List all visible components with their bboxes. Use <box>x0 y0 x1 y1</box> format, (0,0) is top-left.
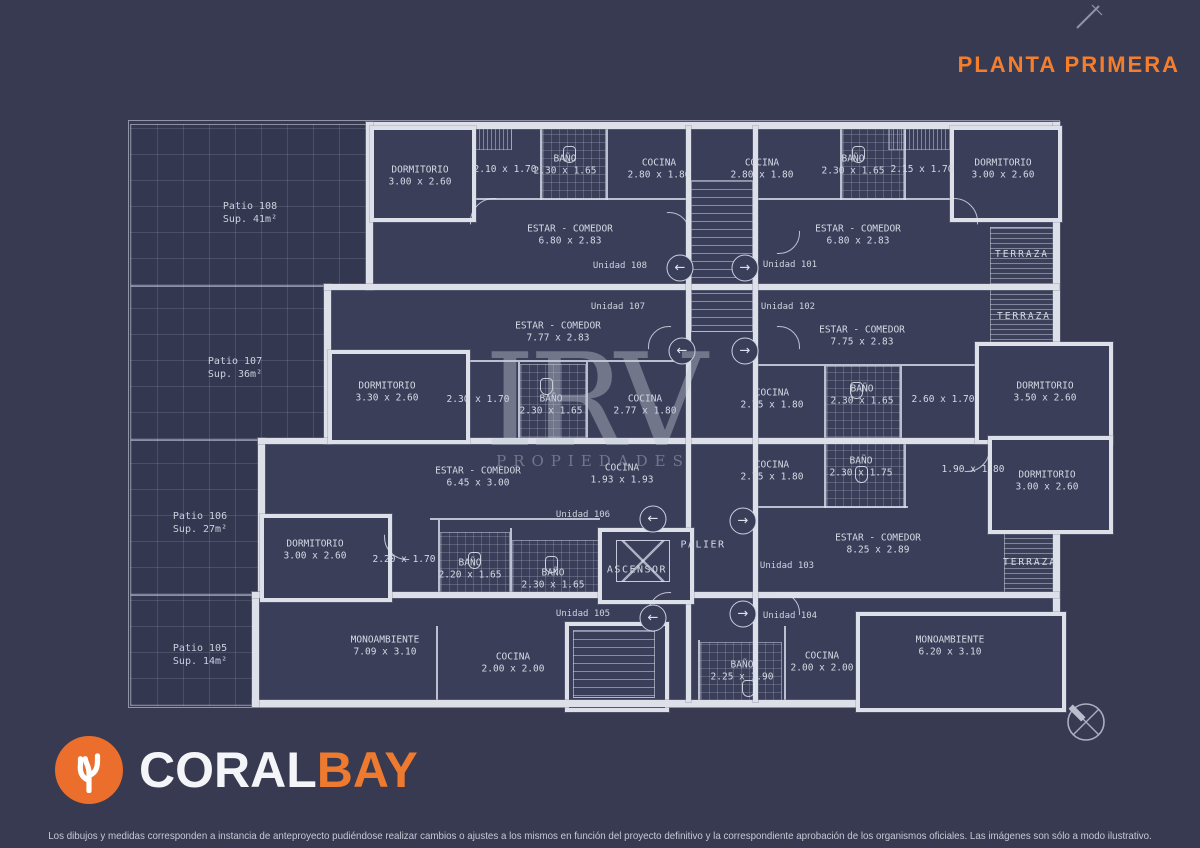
label-room: COCINA 2.80 x 1.80 <box>731 158 794 183</box>
label-room: ESTAR - COMEDOR 7.77 x 2.83 <box>515 321 601 346</box>
label-room: DORMITORIO 3.30 x 2.60 <box>356 381 419 406</box>
label-room: MONOAMBIENTE 6.20 x 3.10 <box>916 635 985 660</box>
label-dim: 2.20 x 1.70 <box>373 554 436 566</box>
plan-labels: Patio 108 Sup. 41m²Patio 107 Sup. 36m²Pa… <box>0 0 1200 848</box>
label-room: BAÑO 2.25 x 1.90 <box>711 660 774 685</box>
label-room: COCINA 2.00 x 2.00 <box>791 651 854 676</box>
label-core: PALIER <box>680 539 725 552</box>
coral-icon <box>55 736 123 804</box>
label-dim: 2.15 x 1.70 <box>891 164 954 176</box>
label-unit: Unidad 106 <box>556 510 610 522</box>
label-dim: 1.90 x 1.80 <box>942 464 1005 476</box>
label-patio: Patio 107 Sup. 36m² <box>208 355 262 381</box>
label-room: ESTAR - COMEDOR 6.45 x 3.00 <box>435 466 521 491</box>
label-unit: Unidad 105 <box>556 609 610 621</box>
label-room: COCINA 1.93 x 1.93 <box>591 463 654 488</box>
label-dim: 2.60 x 1.70 <box>912 394 975 406</box>
label-room: BAÑO 2.30 x 1.65 <box>522 568 585 593</box>
logo: CORALBAY <box>55 736 418 804</box>
label-room: COCINA 2.75 x 1.80 <box>741 460 804 485</box>
label-unit: Unidad 107 <box>591 302 645 314</box>
label-room: ESTAR - COMEDOR 7.75 x 2.83 <box>819 325 905 350</box>
page-title: PLANTA PRIMERA <box>958 52 1180 78</box>
label-room: ESTAR - COMEDOR 6.80 x 2.83 <box>527 224 613 249</box>
label-room: BAÑO 2.20 x 1.65 <box>439 558 502 583</box>
label-room: MONOAMBIENTE 7.09 x 3.10 <box>351 635 420 660</box>
label-room: ESTAR - COMEDOR 6.80 x 2.83 <box>815 224 901 249</box>
compass-icon <box>1060 696 1112 748</box>
label-terraza: TERRAZA <box>997 311 1051 323</box>
label-room: DORMITORIO 3.50 x 2.60 <box>1014 381 1077 406</box>
corner-mark-icon <box>1072 2 1106 32</box>
label-terraza: TERRAZA <box>995 249 1049 261</box>
disclaimer-text: Los dibujos y medidas corresponden a ins… <box>42 830 1158 842</box>
label-room: DORMITORIO 3.00 x 2.60 <box>389 165 452 190</box>
label-patio: Patio 106 Sup. 27m² <box>173 510 227 536</box>
label-patio: Patio 108 Sup. 41m² <box>223 200 277 226</box>
label-room: BAÑO 2.30 x 1.75 <box>830 456 893 481</box>
logo-part-coral: CORAL <box>139 742 317 798</box>
label-unit: Unidad 101 <box>763 260 817 272</box>
label-patio: Patio 105 Sup. 14m² <box>173 642 227 668</box>
label-terraza: TERRAZA <box>1003 557 1057 569</box>
label-room: BAÑO 2.30 x 1.65 <box>822 154 885 179</box>
label-room: COCINA 2.80 x 1.80 <box>628 158 691 183</box>
logo-text: CORALBAY <box>139 745 418 795</box>
logo-part-bay: BAY <box>317 742 418 798</box>
label-room: BAÑO 2.30 x 1.65 <box>831 384 894 409</box>
label-room: COCINA 2.00 x 2.00 <box>482 652 545 677</box>
label-room: ESTAR - COMEDOR 8.25 x 2.89 <box>835 533 921 558</box>
label-unit: Unidad 104 <box>763 611 817 623</box>
label-room: BAÑO 2.30 x 1.65 <box>534 154 597 179</box>
label-unit: Unidad 108 <box>593 261 647 273</box>
label-unit: Unidad 103 <box>760 561 814 573</box>
label-dim: 2.30 x 1.70 <box>447 394 510 406</box>
label-unit: Unidad 102 <box>761 302 815 314</box>
label-dim: 2.10 x 1.70 <box>474 164 537 176</box>
label-core: ASCENSOR <box>607 564 667 577</box>
label-room: BAÑO 2.30 x 1.65 <box>520 394 583 419</box>
label-room: DORMITORIO 3.00 x 2.60 <box>1016 470 1079 495</box>
label-room: COCINA 2.77 x 1.80 <box>614 394 677 419</box>
label-room: DORMITORIO 3.00 x 2.60 <box>972 158 1035 183</box>
floor-plan-page: PLANTA PRIMERA <box>0 0 1200 848</box>
label-room: DORMITORIO 3.00 x 2.60 <box>284 539 347 564</box>
label-room: COCINA 2.75 x 1.80 <box>741 388 804 413</box>
